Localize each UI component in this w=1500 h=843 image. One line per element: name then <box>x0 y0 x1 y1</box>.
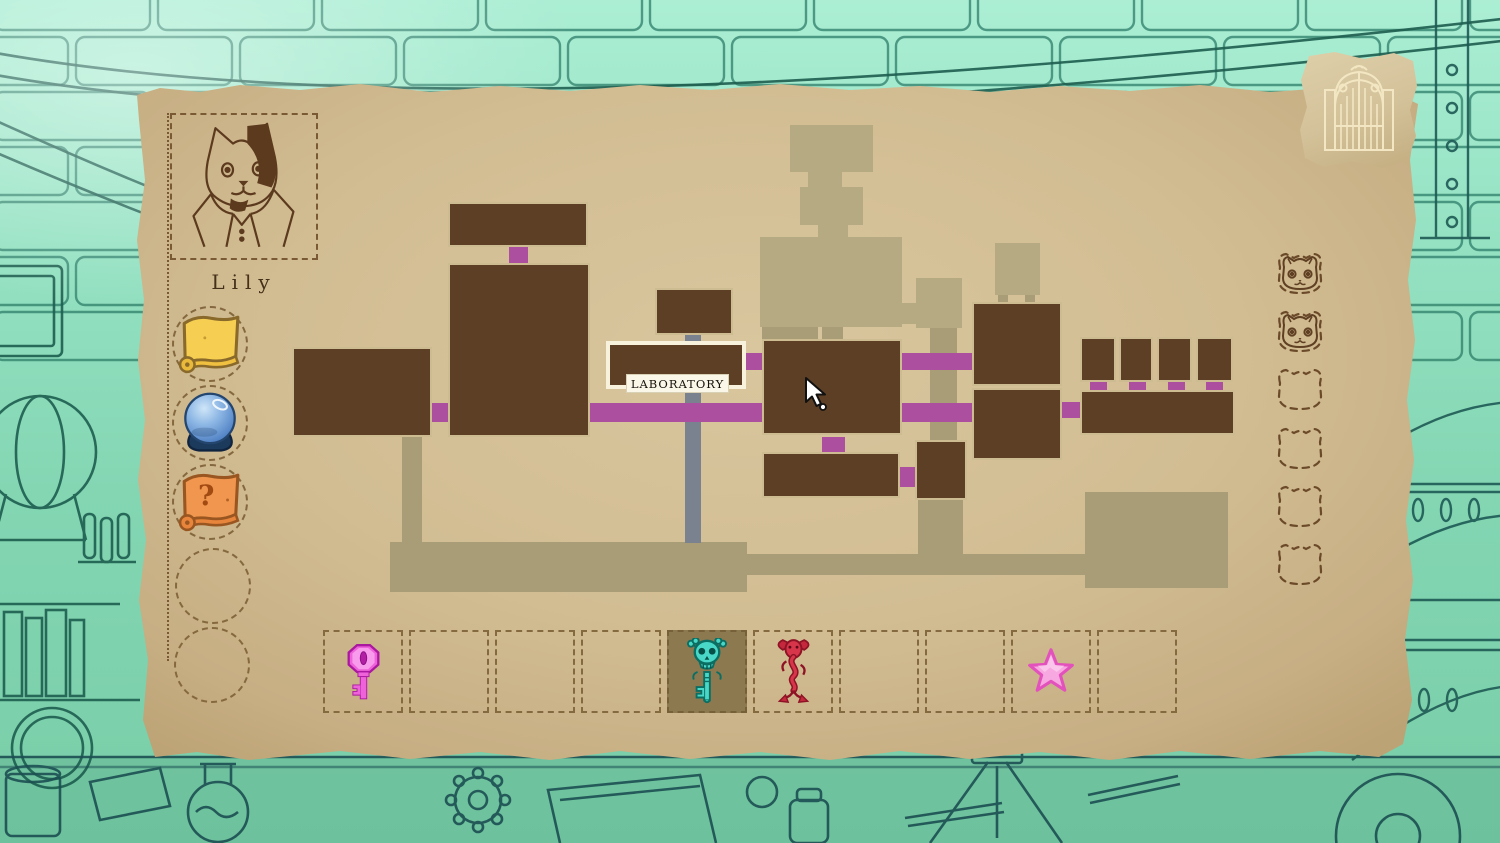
cat-portrait-drawing <box>178 115 310 249</box>
map-room-unexplored <box>760 237 902 327</box>
sidebar-item-map-scroll[interactable] <box>172 306 248 382</box>
map-corridor <box>1129 382 1146 390</box>
inventory-slot-empty[interactable] <box>581 630 661 713</box>
map-room[interactable] <box>292 347 432 437</box>
pink-star-icon <box>1026 648 1076 696</box>
inventory-slot-empty[interactable] <box>409 630 489 713</box>
map-room[interactable] <box>448 263 590 437</box>
map-room[interactable] <box>1080 337 1116 382</box>
map-hallway <box>390 542 747 592</box>
player-name: Lily <box>170 270 318 294</box>
inventory-slot-empty[interactable] <box>1097 630 1177 713</box>
cat-face-icon <box>1283 257 1317 289</box>
cyan-skull-key-icon <box>686 638 728 706</box>
cat-empty-slot <box>1272 366 1328 412</box>
gate-button[interactable] <box>1300 52 1417 168</box>
inventory-slot-red-dragon-key[interactable] <box>753 630 833 713</box>
sidebar-slot-empty <box>175 548 251 624</box>
red-dragon-key-icon <box>774 637 813 707</box>
map-room-unexplored <box>901 303 916 324</box>
map-corridor <box>900 467 915 487</box>
map-room[interactable] <box>448 202 588 247</box>
map-hallway <box>918 500 963 554</box>
cat-empty-slot <box>1272 483 1328 529</box>
inventory-slot-cyan-skull-key[interactable] <box>667 630 747 713</box>
room-tooltip: LABORATORY <box>626 374 729 393</box>
map-corridor <box>822 437 845 453</box>
map-room[interactable] <box>655 288 733 335</box>
cat-head-outline-icon <box>1279 545 1321 584</box>
mouse-cursor <box>800 376 834 418</box>
cat-head-outline-icon <box>1279 370 1321 409</box>
map-room-unexplored <box>790 125 873 172</box>
map-room[interactable] <box>915 440 967 500</box>
inventory-slot-pink-key[interactable] <box>323 630 403 713</box>
map-hallway <box>402 435 422 543</box>
inventory-slot-pink-star[interactable] <box>1011 630 1091 713</box>
inventory-slot-empty[interactable] <box>925 630 1005 713</box>
gate-icon <box>1321 64 1397 156</box>
cat-empty-slot <box>1272 541 1328 587</box>
map-room-unexplored <box>995 243 1040 295</box>
map-corridor <box>1090 382 1107 390</box>
cat-empty-slot <box>1272 425 1328 471</box>
map-corridor <box>509 247 528 263</box>
map-room[interactable] <box>762 452 900 498</box>
crystal-ball-icon <box>177 391 243 455</box>
map-corridor <box>1168 382 1185 390</box>
map-room-unexplored <box>800 187 863 225</box>
hint-question-mark: ? <box>198 479 214 512</box>
map-room[interactable] <box>1080 390 1235 435</box>
inventory-slot-empty[interactable] <box>839 630 919 713</box>
sidebar-slot-empty <box>174 627 250 703</box>
inventory-slot-empty[interactable] <box>495 630 575 713</box>
map-hallway <box>747 554 1085 575</box>
map-room[interactable] <box>972 302 1062 386</box>
map-room[interactable] <box>1119 337 1153 382</box>
map-room[interactable] <box>1157 337 1192 382</box>
cat-found-slot <box>1272 308 1328 354</box>
map-room[interactable] <box>972 388 1062 460</box>
cat-found-slot <box>1272 250 1328 296</box>
cat-head-outline-icon <box>1279 429 1321 468</box>
cat-face-icon <box>1283 315 1317 347</box>
map-corridor <box>1062 402 1080 418</box>
player-portrait <box>170 113 318 260</box>
map-corridor <box>1206 382 1223 390</box>
game-screen: LABORATORY Lily ? <box>0 0 1500 843</box>
map-room-unexplored <box>808 172 842 188</box>
sidebar-item-crystal-ball[interactable] <box>172 385 248 461</box>
map-room-unexplored <box>916 278 962 328</box>
cat-head-outline-icon <box>1279 487 1321 526</box>
map-hallway <box>930 328 957 440</box>
pink-key-icon <box>345 643 382 701</box>
sidebar-divider <box>167 113 169 661</box>
map-hallway <box>1085 492 1228 588</box>
map-room[interactable] <box>1196 337 1233 382</box>
map-scroll-icon <box>173 311 247 377</box>
